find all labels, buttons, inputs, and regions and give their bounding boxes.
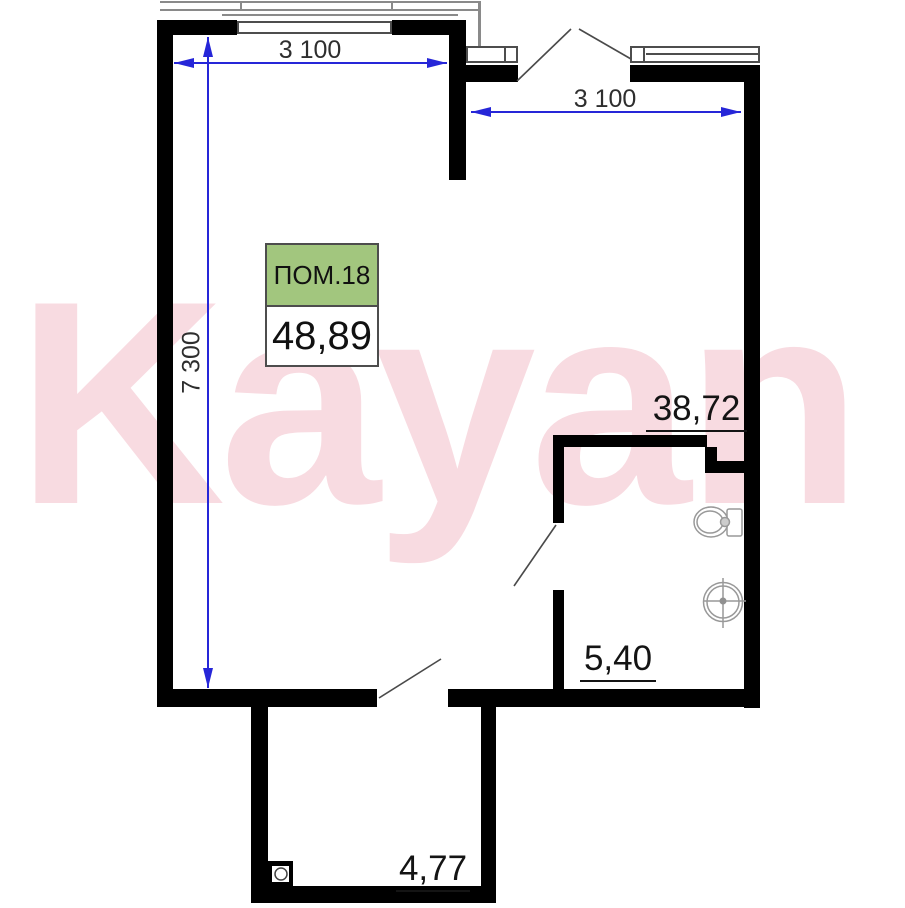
door-swing-lines xyxy=(379,29,631,698)
toilet-bowl-inner xyxy=(697,511,723,533)
sink-drain xyxy=(720,598,727,605)
balcony-door-leaf-left-line xyxy=(517,29,571,81)
plan-linework-overlay xyxy=(0,0,905,908)
toilet-icon xyxy=(694,507,742,537)
balcony-door-leaf-right-line xyxy=(579,29,631,59)
dimension-lines xyxy=(174,37,741,688)
sink-icon xyxy=(703,578,746,628)
toilet-flush-button xyxy=(721,518,730,527)
bathroom-door-line xyxy=(514,525,556,586)
floor-plan: Kayan ПОМ.18 48,89 38,72 5,40 4,77 3 100… xyxy=(0,0,905,908)
loggia-door-line xyxy=(379,659,441,698)
loggia-corner-circle xyxy=(275,868,287,880)
